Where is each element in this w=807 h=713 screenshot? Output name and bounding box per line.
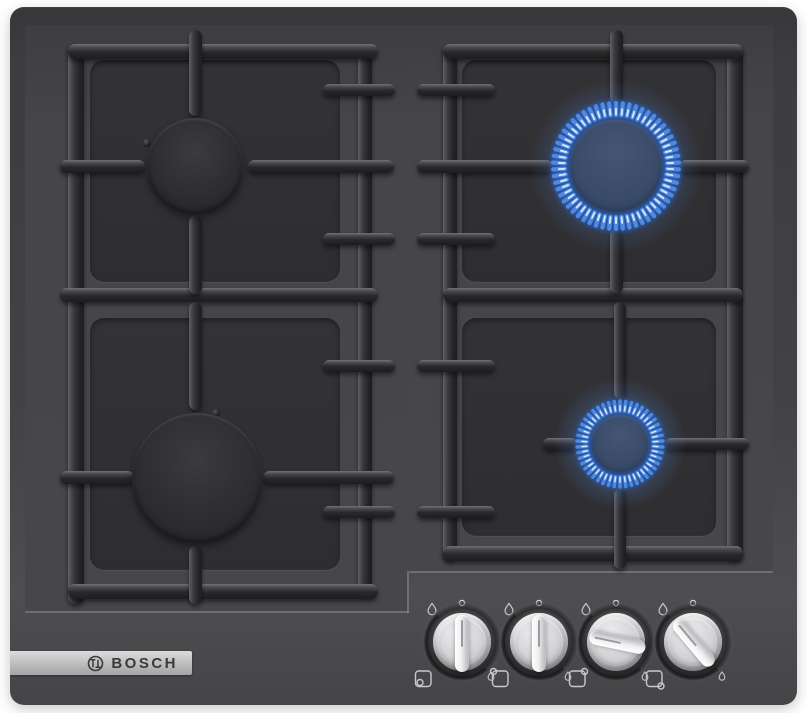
burner-well-front-right xyxy=(462,318,716,536)
knob-front-right[interactable] xyxy=(643,592,743,692)
grate-bar xyxy=(189,30,202,116)
knob-handle[interactable] xyxy=(532,615,546,672)
grate-bar xyxy=(610,229,623,293)
grate-bar xyxy=(417,360,495,372)
ignition-electrode xyxy=(143,139,151,147)
deck-step-edge xyxy=(407,571,409,613)
grate-bar xyxy=(68,44,378,59)
grate-bar xyxy=(323,233,395,245)
grate-bar xyxy=(323,360,395,372)
grate-bar xyxy=(248,160,394,173)
grate-bar xyxy=(543,438,577,450)
grate-bar xyxy=(443,44,457,560)
grate-bar xyxy=(417,233,495,245)
grate-bar xyxy=(68,44,84,604)
burner-cap-back-left xyxy=(147,118,243,214)
grate-bar xyxy=(323,84,395,96)
grate-bar xyxy=(417,506,495,518)
bosch-badge: BOSCH xyxy=(10,651,192,675)
grate-bar xyxy=(60,288,378,302)
grate-bar xyxy=(610,30,623,104)
grate-bar xyxy=(679,160,749,173)
grate-bar xyxy=(417,84,495,96)
knob-handle[interactable] xyxy=(670,617,717,670)
grate-bar xyxy=(614,489,626,569)
bosch-logo-text: BOSCH xyxy=(111,656,178,671)
burner-cap-back-right xyxy=(570,120,662,212)
burner-cap-front-right xyxy=(591,415,649,473)
grate-bar xyxy=(189,216,202,294)
grate-bar xyxy=(68,584,378,599)
grate-bar xyxy=(443,288,743,302)
grate-bar xyxy=(189,302,202,410)
grate-bar xyxy=(665,438,749,450)
grate-bar xyxy=(263,471,394,484)
bosch-logo-icon xyxy=(87,655,104,672)
grate-bar xyxy=(189,546,202,604)
grate-bar xyxy=(323,506,395,518)
deck-front-edge-right xyxy=(409,571,773,573)
grate-bar xyxy=(417,160,553,173)
burner-cap-front-left xyxy=(132,413,262,543)
grate-bar xyxy=(443,546,743,561)
grate-bar xyxy=(60,160,145,173)
grate-bar xyxy=(443,44,743,59)
grate-bar xyxy=(60,471,134,484)
deck-front-edge-left xyxy=(25,611,409,613)
grate-bar xyxy=(614,302,626,399)
grate-bar xyxy=(727,44,743,560)
knob-handle[interactable] xyxy=(455,615,469,672)
